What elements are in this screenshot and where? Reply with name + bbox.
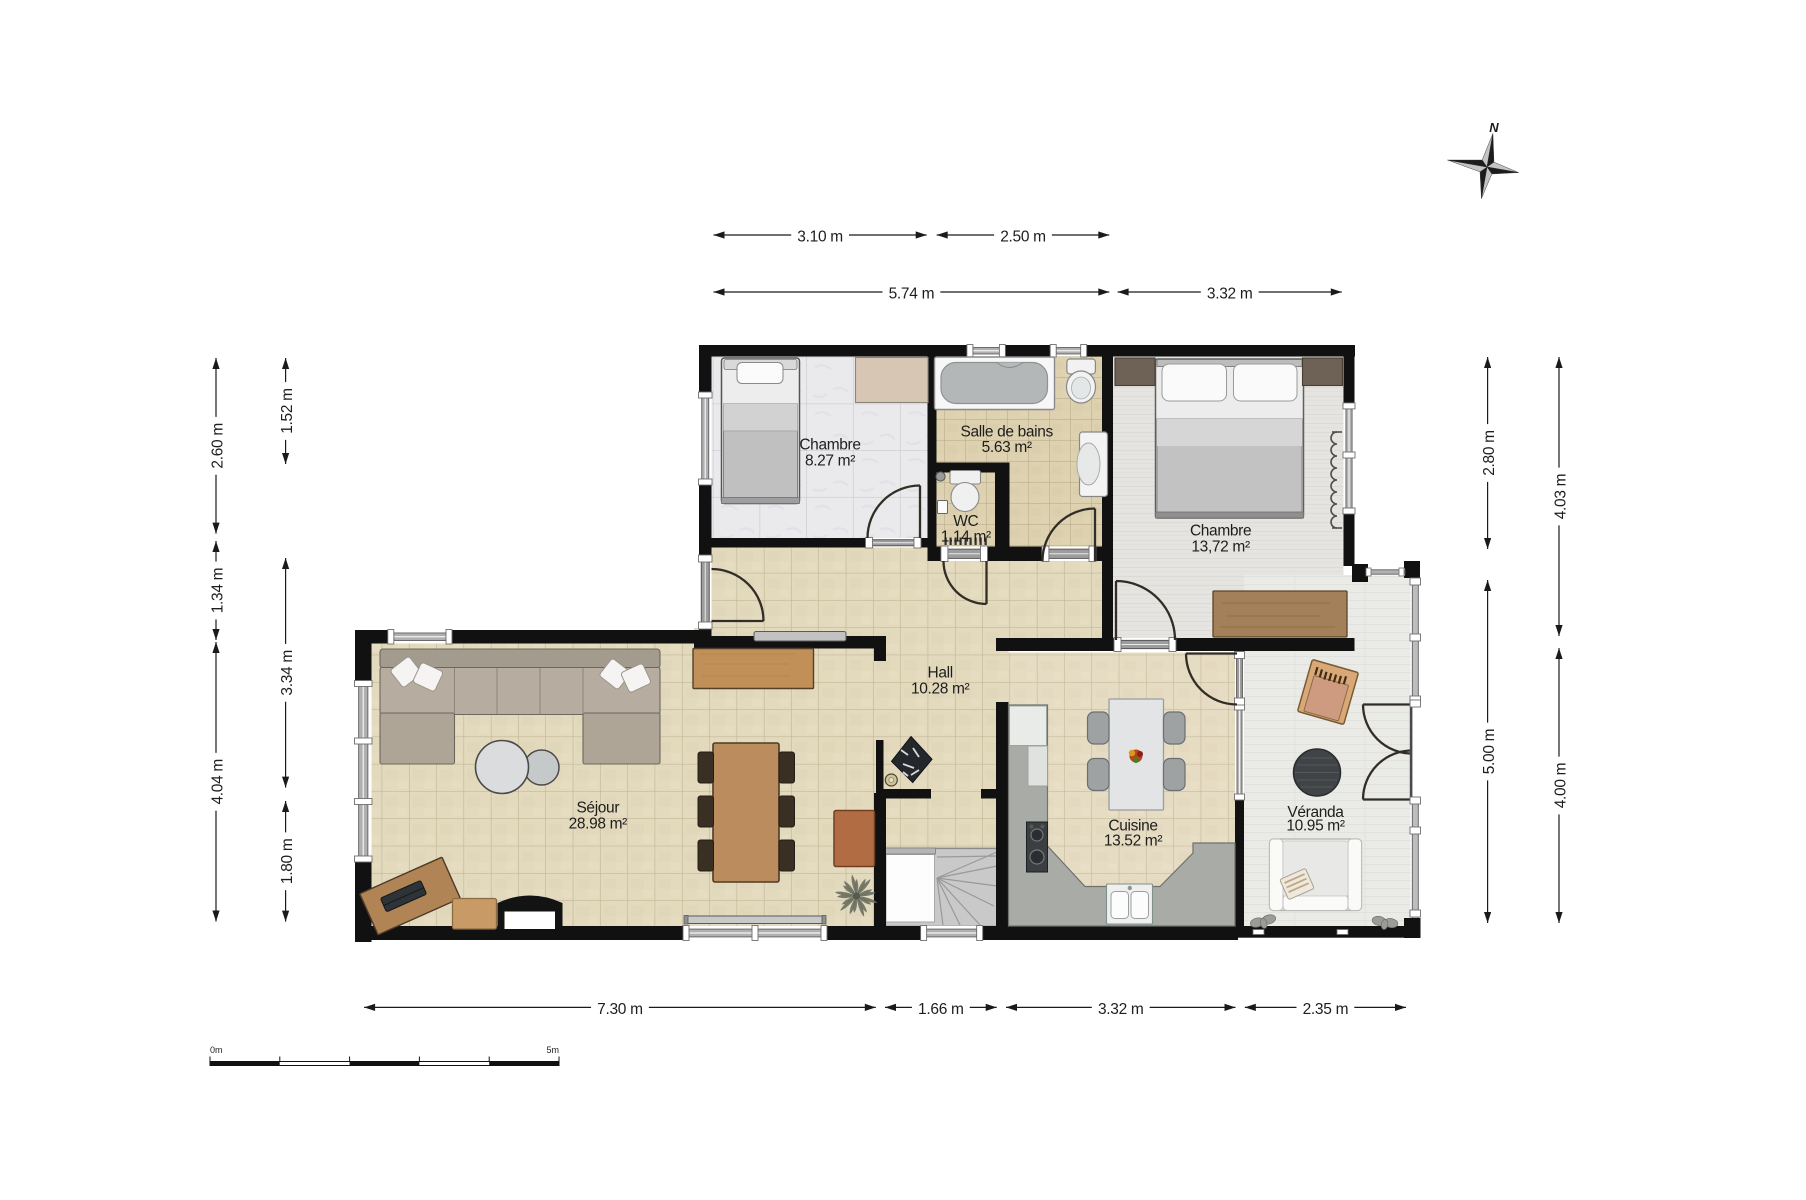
svg-text:3.32 m: 3.32 m — [1098, 1001, 1144, 1018]
svg-text:4.00 m: 4.00 m — [1553, 763, 1570, 809]
svg-text:13,72 m²: 13,72 m² — [1191, 539, 1250, 556]
svg-text:7.30 m: 7.30 m — [597, 1001, 643, 1018]
svg-text:Chambre: Chambre — [1190, 523, 1251, 540]
svg-text:Séjour: Séjour — [576, 800, 619, 817]
svg-text:3.10 m: 3.10 m — [797, 229, 843, 246]
svg-text:5.00 m: 5.00 m — [1481, 729, 1498, 775]
svg-text:13.52 m²: 13.52 m² — [1104, 833, 1163, 850]
svg-text:2.35 m: 2.35 m — [1303, 1001, 1349, 1018]
svg-text:4.04 m: 4.04 m — [210, 759, 227, 805]
svg-text:3.34 m: 3.34 m — [279, 650, 296, 696]
svg-text:5.63 m²: 5.63 m² — [982, 439, 1032, 456]
svg-text:2.80 m: 2.80 m — [1481, 430, 1498, 476]
svg-text:28.98 m²: 28.98 m² — [569, 816, 628, 833]
svg-text:WC: WC — [953, 513, 978, 530]
svg-text:2.50 m: 2.50 m — [1000, 229, 1046, 246]
svg-text:Chambre: Chambre — [799, 437, 860, 454]
svg-text:0m: 0m — [210, 1045, 223, 1055]
svg-text:1.80 m: 1.80 m — [279, 839, 296, 885]
svg-text:5m: 5m — [546, 1045, 559, 1055]
svg-text:8.27 m²: 8.27 m² — [805, 453, 855, 470]
svg-text:2.60 m: 2.60 m — [210, 423, 227, 469]
svg-text:10.95 m²: 10.95 m² — [1286, 818, 1345, 835]
svg-text:5.74 m: 5.74 m — [889, 286, 935, 303]
svg-text:N: N — [1489, 120, 1499, 135]
svg-text:1.52 m: 1.52 m — [279, 388, 296, 434]
svg-text:10.28 m²: 10.28 m² — [911, 680, 970, 697]
svg-text:Salle de bains: Salle de bains — [960, 424, 1053, 441]
svg-text:4.03 m: 4.03 m — [1553, 474, 1570, 520]
svg-text:1.66 m: 1.66 m — [918, 1001, 964, 1018]
svg-text:Hall: Hall — [928, 665, 953, 682]
svg-text:1.34 m: 1.34 m — [210, 568, 227, 614]
svg-text:1.14 m²: 1.14 m² — [941, 529, 991, 546]
svg-text:3.32 m: 3.32 m — [1207, 286, 1253, 303]
